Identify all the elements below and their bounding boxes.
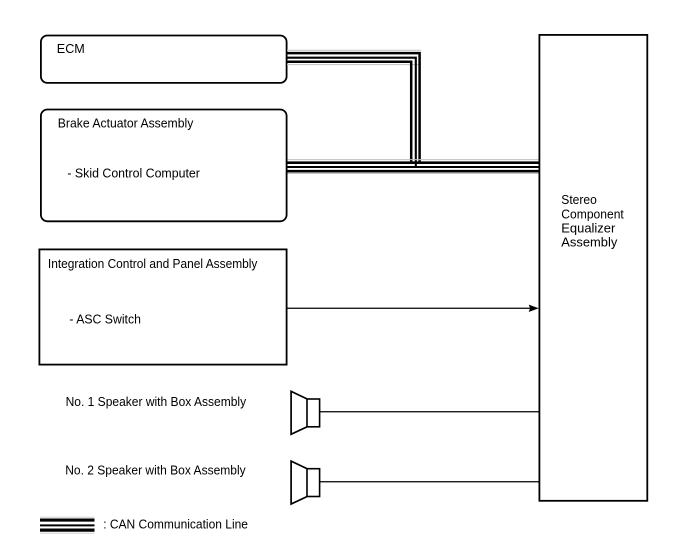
svg-text:ECM: ECM [57,41,85,56]
svg-text:No. 2 Speaker with Box Assembl: No. 2 Speaker with Box Assembly [65,463,246,478]
svg-text:Stereo: Stereo [561,192,597,207]
svg-text:Integration Control and Panel: Integration Control and Panel Assembly [48,256,258,271]
svg-text:- Skid Control Computer: - Skid Control Computer [67,166,200,181]
svg-text:Brake Actuator Assembly: Brake Actuator Assembly [58,116,194,131]
svg-text:- ASC Switch: - ASC Switch [69,311,140,326]
svg-text:Component: Component [561,206,624,221]
svg-text:No. 1 Speaker with Box Assembl: No. 1 Speaker with Box Assembly [66,394,247,409]
svg-text:Equalizer: Equalizer [561,221,616,236]
svg-text:: CAN Communication Line: : CAN Communication Line [103,516,248,531]
svg-text:Assembly: Assembly [561,235,617,250]
